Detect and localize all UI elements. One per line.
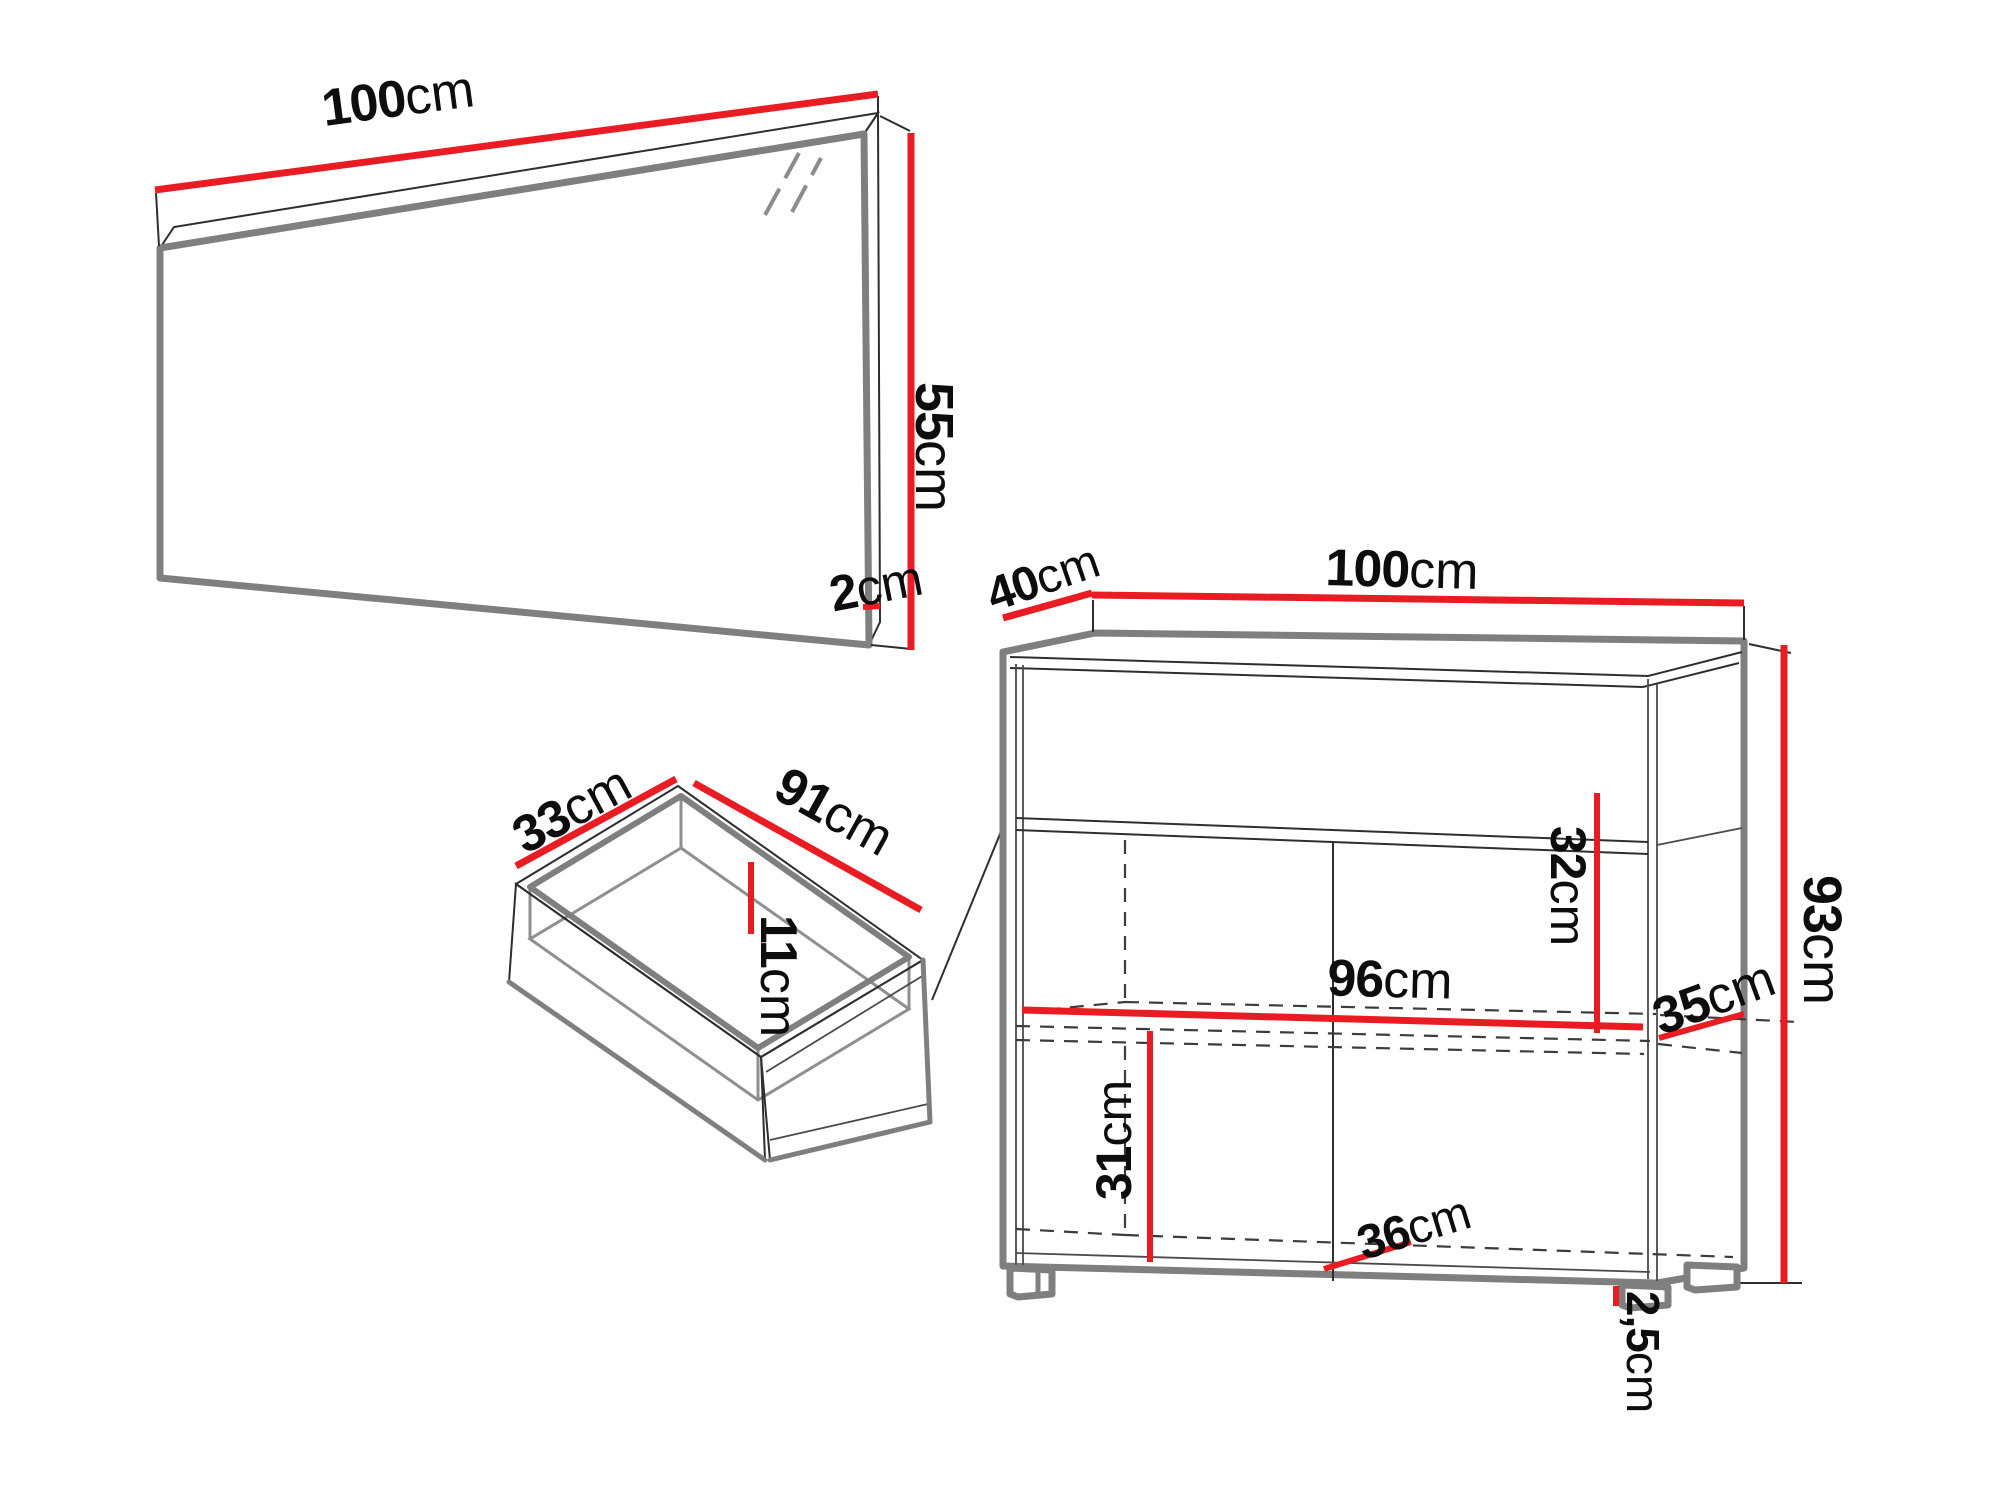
drawer-side-wall-bottom-edge	[509, 982, 765, 1160]
cabinet-height-label: 93cm	[1792, 875, 1852, 1005]
drawer-front-panel-right-edge	[923, 960, 930, 1122]
cabinet-foot-back-right	[1687, 1265, 1737, 1290]
mirror-extension-line	[880, 116, 910, 131]
mirror-front-face	[160, 134, 869, 645]
cabinet-foot-front-left	[1010, 1268, 1052, 1297]
cabinet: 40cm 100cm 93cm 96cm 32cm 31cm 35cm 36cm…	[980, 534, 1852, 1413]
cabinet-interior-width-label: 96cm	[1327, 949, 1454, 1010]
drawer-front-panel-line	[770, 1104, 928, 1140]
mirror-height-label: 55cm	[904, 382, 964, 512]
cabinet-feet-height-label: 2,5cm	[1617, 1291, 1669, 1413]
furniture-dimension-diagram: 100cm 55cm 2cm 33cm 91cm	[0, 0, 2000, 1500]
mirror: 100cm 55cm 2cm	[155, 60, 964, 650]
drawer-height-label: 11cm	[749, 915, 807, 1037]
mirror-extension-line	[156, 193, 159, 246]
cabinet-width-label: 100cm	[1325, 539, 1480, 601]
mirror-extension-line	[871, 645, 911, 649]
drawer-depth-label: 33cm	[503, 755, 641, 866]
drawer-side-wall	[509, 884, 765, 1160]
drawer: 33cm 91cm 11cm	[503, 734, 1041, 1160]
drawer-width-label: 91cm	[765, 756, 903, 867]
drawer-floor	[530, 848, 909, 1100]
drawer-front-panel-bottom-edge	[770, 1122, 930, 1160]
cabinet-lower-height-label: 31cm	[1086, 1080, 1142, 1200]
cabinet-upper-height-label: 32cm	[1540, 826, 1596, 946]
mirror-width-label: 100cm	[318, 60, 477, 138]
